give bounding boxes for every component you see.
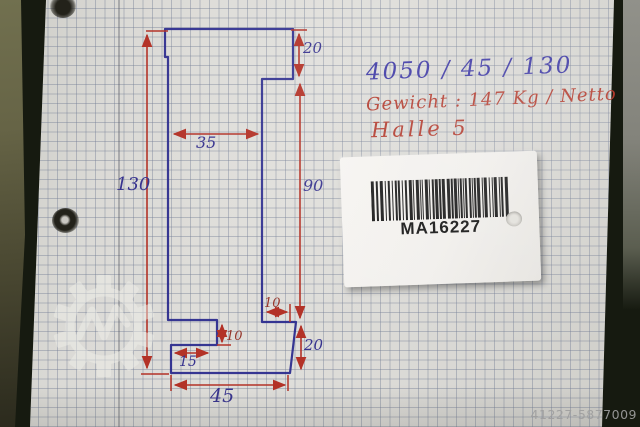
dim-right-height: 90 xyxy=(303,176,323,195)
barcode xyxy=(371,176,515,221)
note-hall: Halle 5 xyxy=(371,116,469,143)
listing-id-watermark: 41227-5877009 xyxy=(531,407,637,422)
gear-watermark-icon xyxy=(48,272,160,384)
dim-column-width: 35 xyxy=(196,133,216,152)
dim-bottom-right-height: 20 xyxy=(303,336,324,354)
dim-bottom-width: 45 xyxy=(209,385,234,407)
dim-notch-width: 15 xyxy=(179,354,197,370)
photo-of-hand-sketch: 130 35 20 90 10 10 15 20 45 4050 / 45 / … xyxy=(0,0,640,427)
dim-notch-height: 10 xyxy=(226,329,243,344)
part-outline xyxy=(165,29,296,373)
barcode-label: MA16227 xyxy=(340,151,541,288)
dim-total-height: 130 xyxy=(116,174,150,195)
dimension-lines xyxy=(147,34,301,385)
dim-step-width: 10 xyxy=(264,296,281,311)
dim-top-right-height: 20 xyxy=(302,39,323,57)
extension-lines xyxy=(141,30,307,391)
